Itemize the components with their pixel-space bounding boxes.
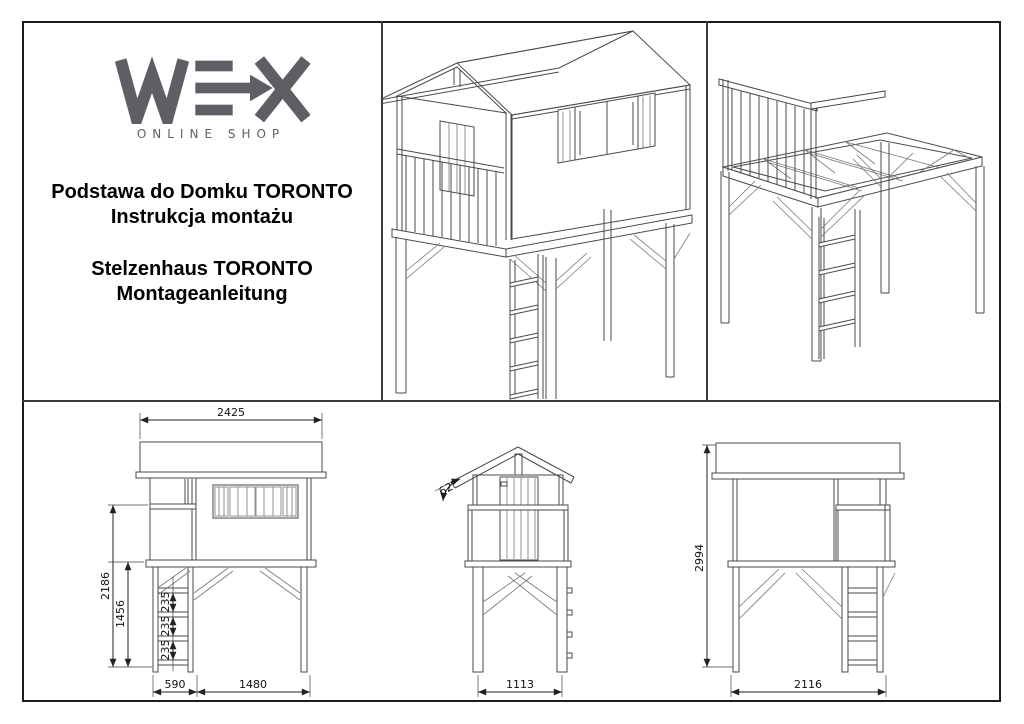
wex-logo-letters xyxy=(121,60,306,119)
dim-front-frame-width: 1113 xyxy=(506,678,534,691)
wex-logo xyxy=(110,52,310,124)
title-german-line1: Stelzenhaus TORONTO xyxy=(24,258,380,281)
title-polish-line1: Podstawa do Domku TORONTO xyxy=(24,181,380,204)
rear-elevation-view: 2994 2116 xyxy=(693,443,904,697)
dim-rung-gap-2: 235 xyxy=(159,616,172,637)
logo-subtitle: ONLINE SHOP xyxy=(112,127,310,141)
ladder-rungs xyxy=(510,277,538,399)
title-polish-line2: Instrukcja montażu xyxy=(24,206,380,229)
dim-side-frame-width: 1480 xyxy=(239,678,267,691)
dim-side-platform-height: 1456 xyxy=(114,600,127,628)
isometric-base-frame-drawing xyxy=(707,21,1001,400)
side-elevation-view: 2425 xyxy=(99,406,326,697)
dim-rung-gap-3: 235 xyxy=(159,640,172,661)
dim-side-ladder-width: 590 xyxy=(165,678,186,691)
dim-side-roof-width: 2425 xyxy=(217,406,245,419)
isometric-playhouse-drawing xyxy=(382,21,707,400)
dim-rung-gap-1: 235 xyxy=(159,592,172,613)
manual-cover-page: ONLINE SHOP Podstawa do Domku TORONTO In… xyxy=(0,0,1024,724)
dim-rear-total-height: 2994 xyxy=(693,544,706,572)
dim-rear-frame-width: 2116 xyxy=(794,678,822,691)
front-elevation-view: 62° 1113 xyxy=(435,447,574,697)
dimensioned-elevation-views: 2425 xyxy=(22,401,1001,702)
title-german-line2: Montageanleitung xyxy=(24,283,380,306)
dim-side-total-height: 2186 xyxy=(99,572,112,600)
